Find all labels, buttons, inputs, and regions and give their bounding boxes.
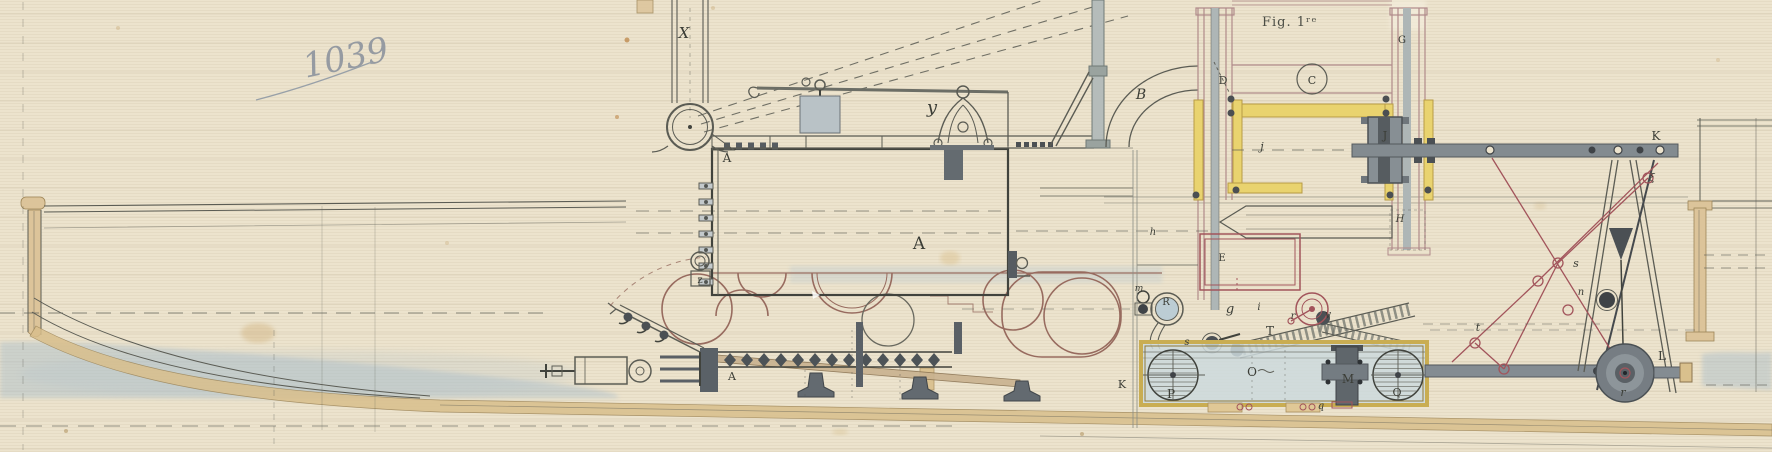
part-label-A: A [722,151,732,165]
lifting-arm-K [1352,144,1678,157]
part-label-s: s [1573,257,1579,270]
lower-beam [1425,365,1600,377]
rail-post [856,322,863,387]
yellow-beam [1232,104,1392,117]
part-label-J: J [1382,129,1387,142]
part-label-ξ: ξ [1649,173,1655,184]
part-label-T: T [1266,324,1274,338]
part-label-v: v [1325,308,1332,321]
stain-spot [940,251,960,265]
part-label-M: M [1342,372,1354,386]
part-label-P: P [1167,387,1175,401]
yellow-post [1194,100,1203,200]
part-label-R: R [1162,297,1170,308]
part-label-g: g [1226,302,1234,317]
bow-post [28,210,41,337]
bow-cap [21,197,45,209]
part-label-i: i [1257,302,1260,313]
part-label-L: L [1658,349,1666,363]
part-label-r: r [1620,386,1626,399]
part-label-C: C [1308,74,1316,87]
part-label-A: A [727,370,737,383]
part-label-z: z [697,275,702,286]
part-label-K: K [1118,378,1127,391]
stain-spot [241,323,275,343]
stern-post [1694,208,1706,336]
pump-cylinder [944,150,963,180]
part-label-E: E [1218,253,1225,264]
part-label-G: G [1398,35,1406,46]
part-label-q: q [1318,401,1324,412]
part-label-Q: Q [1392,386,1401,399]
hanging-weight [800,96,840,133]
part-label-y: y [926,97,938,118]
water-wash-right [1702,352,1772,390]
part-label-B: B [1135,87,1146,103]
part-label-A: A [912,234,926,254]
part-label-X: X [678,24,691,42]
part-label-n: n [1578,287,1584,298]
scanned-drawing-page: 1039 [0,0,1772,452]
part-label-m: m [1135,284,1144,294]
figure-caption: Fig. 1ʳᵉ [1262,15,1318,30]
part-label-D: D [1219,74,1228,87]
part-label-h: h [1150,227,1156,238]
technical-drawing: 1039 [0,0,1772,452]
column-iron-core [1211,8,1219,310]
part-label-s: s [1184,337,1189,348]
part-label-H: H [1395,214,1405,225]
part-label-K: K [1652,129,1662,143]
part-label-t: t [1476,321,1481,334]
part-label-O: O [1247,365,1257,379]
